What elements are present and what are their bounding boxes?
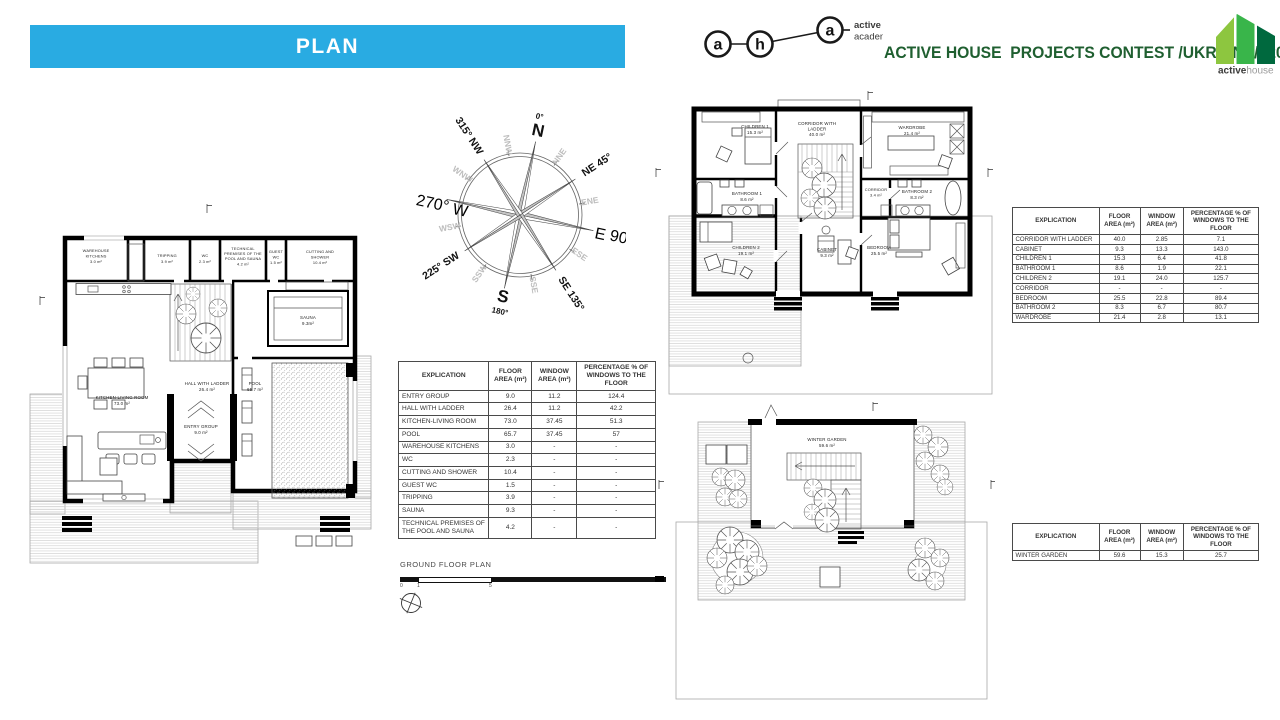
column-header: PERCENTAGE % OF WINDOWS TO THE FLOOR <box>1183 208 1258 235</box>
value-cell: 15.3 <box>1140 551 1183 561</box>
column-header: EXPLICATION <box>1013 524 1100 551</box>
room-area: 3.9 m² <box>161 259 173 264</box>
compass-label-northeast: NE 45° <box>580 151 615 179</box>
room-label: CHILDREN 2 <box>732 245 760 250</box>
value-cell: 19.1 <box>1099 274 1140 284</box>
value-cell: - <box>577 467 656 480</box>
house-icon <box>1216 10 1275 64</box>
scale-tick: 1 <box>417 583 420 589</box>
value-cell: 13.1 <box>1183 313 1258 323</box>
room-name-cell: CHILDREN 2 <box>1013 274 1100 284</box>
table-row: CHILDREN 115.36.441.8 <box>1013 254 1259 264</box>
room-label: GUEST <box>269 249 284 254</box>
scale-ticks: 0 1 5 <box>400 583 666 589</box>
table-row: WINTER GARDEN59.615.325.7 <box>1013 551 1259 561</box>
room-label: WARDROBE <box>899 125 926 130</box>
room-label: KITCHEN-LIVING ROOM <box>96 395 149 400</box>
room-name-cell: CORRIDOR <box>1013 284 1100 294</box>
table-row: CUTTING AND SHOWER10.4-- <box>399 467 656 480</box>
table-header-row: EXPLICATIONFLOOR AREA (m²)WINDOW AREA (m… <box>1013 208 1259 235</box>
value-cell: 26.4 <box>489 403 532 416</box>
room-name-cell: HALL WITH LADDER <box>399 403 489 416</box>
room-name-cell: BATHROOM 2 <box>1013 303 1100 313</box>
elevation-mark <box>655 576 664 582</box>
compass-label-wsw: WSW <box>438 220 462 234</box>
column-header: FLOOR AREA (m²) <box>1099 208 1140 235</box>
room-area: 19.1 m² <box>738 251 754 256</box>
room-area: 21.4 m² <box>904 131 920 136</box>
value-cell: 42.2 <box>577 403 656 416</box>
activehouse-text-light: house <box>1246 66 1274 77</box>
room-label: CORRIDOR WITH <box>798 121 836 126</box>
room-label: SAUNA <box>300 315 316 320</box>
scale-bar <box>400 577 666 582</box>
ground-floor-table: EXPLICATIONFLOOR AREA (m²)WINDOW AREA (m… <box>398 361 656 539</box>
value-cell: 9.0 <box>489 390 532 403</box>
dimension-mark-icon <box>873 402 878 411</box>
dimension-mark-icon <box>868 91 873 100</box>
north-symbol-icon <box>398 590 424 616</box>
shower-hatch <box>286 282 348 290</box>
value-cell: 143.0 <box>1183 245 1258 255</box>
value-cell: - <box>532 441 577 454</box>
closet-hatch <box>128 244 144 281</box>
room-area: 9.0 m² <box>194 430 208 435</box>
table-row: HALL WITH LADDER26.411.242.2 <box>399 403 656 416</box>
room-area: 65.7 m² <box>247 387 263 392</box>
table-row: CHILDREN 219.124.0125.7 <box>1013 274 1259 284</box>
compass-label-sse: SSE <box>528 276 541 295</box>
value-cell: - <box>532 505 577 518</box>
room-area: 3.4 m² <box>870 193 882 198</box>
value-cell: 57 <box>577 428 656 441</box>
value-cell: - <box>532 517 577 538</box>
value-cell: 25.7 <box>1183 551 1258 561</box>
room-label: CHILDREN 1 <box>741 124 769 129</box>
table-row: CABINET9.313.3143.0 <box>1013 245 1259 255</box>
room-area: 8.6 m² <box>740 197 754 202</box>
first-floor-plan: CHILDREN 1 15.3 m² CORRIDOR WITH LADDER … <box>650 90 1000 420</box>
dimension-mark-icon <box>207 204 212 213</box>
table-row: CORRIDOR WITH LADDER40.02.857.1 <box>1013 235 1259 245</box>
column-header: WINDOW AREA (m²) <box>532 362 577 391</box>
room-name-cell: TRIPPING <box>399 492 489 505</box>
column-header: PERCENTAGE % OF WINDOWS TO THE FLOOR <box>577 362 656 391</box>
value-cell: - <box>577 441 656 454</box>
column-header: FLOOR AREA (m²) <box>1099 524 1140 551</box>
table-row: TECHNICAL PREMISES OF THE POOL AND SAUNA… <box>399 517 656 538</box>
room-name-cell: WAREHOUSE KITCHENS <box>399 441 489 454</box>
value-cell: - <box>577 517 656 538</box>
room-name-cell: CUTTING AND SHOWER <box>399 467 489 480</box>
room-area: 9.3m² <box>302 321 314 326</box>
value-cell: 24.0 <box>1140 274 1183 284</box>
room-label: POOL AND SAUNA <box>225 256 262 261</box>
room-label: ENTRY GROUP <box>184 424 218 429</box>
table-row: SAUNA9.3-- <box>399 505 656 518</box>
column-header: PERCENTAGE % OF WINDOWS TO THE FLOOR <box>1183 524 1258 551</box>
value-cell: - <box>532 479 577 492</box>
room-area: 73.0 m² <box>114 401 130 406</box>
room-label: LADDER <box>808 127 827 132</box>
activehouse-text-bold: active <box>1218 66 1247 77</box>
room-name-cell: KITCHEN-LIVING ROOM <box>399 416 489 429</box>
room-name-cell: SAUNA <box>399 505 489 518</box>
room-label: WINTER GARDEN <box>807 437 846 442</box>
table-row: BATHROOM 28.36.780.7 <box>1013 303 1259 313</box>
compass-label-nnw: NNW <box>501 134 515 157</box>
room-name-cell: WINTER GARDEN <box>1013 551 1100 561</box>
stair-trees <box>801 158 836 219</box>
logo-letter: h <box>755 37 765 54</box>
value-cell: 8.3 <box>1099 303 1140 313</box>
scale-tick: 0 <box>400 583 403 589</box>
value-cell: 51.3 <box>577 416 656 429</box>
room-area: 8.3 m² <box>910 195 924 200</box>
value-cell: 10.4 <box>489 467 532 480</box>
compass-label-southwest: 225° SW <box>420 250 461 283</box>
value-cell: - <box>532 492 577 505</box>
compass-rose: 0° N NE 45° E 90° SE 135° S 180° 225° SW… <box>414 105 626 320</box>
dimension-mark-icon <box>40 296 45 305</box>
value-cell: - <box>577 479 656 492</box>
column-header: WINDOW AREA (m²) <box>1140 208 1183 235</box>
compass-label-north: N <box>530 120 546 141</box>
room-label: TRIPPING <box>157 253 177 258</box>
column-header: WINDOW AREA (m²) <box>1140 524 1183 551</box>
table-row: POOL65.737.4557 <box>399 428 656 441</box>
table-row: GUEST WC1.5-- <box>399 479 656 492</box>
value-cell: - <box>577 492 656 505</box>
dimension-mark-icon <box>988 168 993 177</box>
value-cell: 3.0 <box>489 441 532 454</box>
compass-label-ene: ENE <box>580 195 599 208</box>
value-cell: 65.7 <box>489 428 532 441</box>
column-header: FLOOR AREA (m²) <box>489 362 532 391</box>
room-label: BEDROOM <box>867 245 891 250</box>
winter-garden-table: EXPLICATIONFLOOR AREA (m²)WINDOW AREA (m… <box>1012 523 1259 561</box>
room-name-cell: GUEST WC <box>399 479 489 492</box>
room-label: WAREHOUSE <box>83 248 110 253</box>
children1-furniture <box>702 112 771 164</box>
table-row: WAREHOUSE KITCHENS3.0-- <box>399 441 656 454</box>
compass-label-east: E 90° <box>593 224 626 250</box>
logo-connector <box>772 33 818 42</box>
table-row: WC2.3-- <box>399 454 656 467</box>
table-header-row: EXPLICATIONFLOOR AREA (m²)WINDOW AREA (m… <box>1013 524 1259 551</box>
compass-label-south: S <box>496 286 511 307</box>
value-cell: 11.2 <box>532 390 577 403</box>
value-cell: 8.6 <box>1099 264 1140 274</box>
value-cell: 125.7 <box>1183 274 1258 284</box>
room-area: 15.3 m² <box>747 130 763 135</box>
value-cell: 13.3 <box>1140 245 1183 255</box>
room-label: BATHROOM 2 <box>902 189 933 194</box>
room-area: 2.3 m² <box>199 259 211 264</box>
value-cell: 89.4 <box>1183 294 1258 304</box>
value-cell: 11.2 <box>532 403 577 416</box>
room-area: 25.5 m² <box>871 251 887 256</box>
logo-letter: a <box>714 37 723 54</box>
room-label: CABINET <box>817 247 837 252</box>
column-header: EXPLICATION <box>1013 208 1100 235</box>
dimension-mark-icon <box>656 168 661 177</box>
dining-furniture <box>78 358 144 409</box>
value-cell: 4.2 <box>489 517 532 538</box>
value-cell: 40.0 <box>1099 235 1140 245</box>
value-cell: - <box>577 454 656 467</box>
room-label: WC <box>273 255 280 260</box>
compass-label-south-degree: 180° <box>491 305 509 317</box>
first-floor-table: EXPLICATIONFLOOR AREA (m²)WINDOW AREA (m… <box>1012 207 1259 323</box>
value-cell: 9.3 <box>1099 245 1140 255</box>
academy-name-line1: active house <box>854 20 883 31</box>
room-area: 9.3 m² <box>820 253 834 258</box>
value-cell: 25.5 <box>1099 294 1140 304</box>
wardrobe-furniture <box>864 112 965 175</box>
ground-floor-caption: GROUND FLOOR PLAN <box>400 560 491 569</box>
column-header: EXPLICATION <box>399 362 489 391</box>
room-name-cell: WC <box>399 454 489 467</box>
value-cell: 1.5 <box>489 479 532 492</box>
room-label: WC <box>202 253 209 258</box>
value-cell: 59.6 <box>1099 551 1140 561</box>
room-label: SHOWER <box>311 255 329 260</box>
scale-tick: 5 <box>489 583 492 589</box>
dimension-mark-icon <box>659 480 664 489</box>
room-name-cell: ENTRY GROUP <box>399 390 489 403</box>
value-cell: 7.1 <box>1183 235 1258 245</box>
value-cell: 73.0 <box>489 416 532 429</box>
room-area: 26.4 m² <box>199 387 215 392</box>
room-name-cell: BEDROOM <box>1013 294 1100 304</box>
room-name-cell: CORRIDOR WITH LADDER <box>1013 235 1100 245</box>
room-label: BATHROOM 1 <box>732 191 763 196</box>
compass-label-nne: NNE <box>550 146 569 167</box>
room-label: CORRIDOR <box>865 187 887 192</box>
value-cell: 2.3 <box>489 454 532 467</box>
room-label: HALL WITH LADDER <box>185 381 230 386</box>
table-row: BEDROOM25.522.889.4 <box>1013 294 1259 304</box>
dimension-mark-icon <box>991 480 995 489</box>
room-name-cell: TECHNICAL PREMISES OF THE POOL AND SAUNA <box>399 517 489 538</box>
room-area: 59.6 m² <box>819 443 835 448</box>
value-cell: 9.3 <box>489 505 532 518</box>
compass-label-ese: ESE <box>570 245 590 263</box>
room-label: KITCHENS <box>86 254 107 259</box>
value-cell: 3.9 <box>489 492 532 505</box>
section-banner: PLAN <box>30 25 625 68</box>
value-cell: 21.4 <box>1099 313 1140 323</box>
compass-label-northwest: 315° NW <box>452 115 485 157</box>
table-row: CORRIDOR--- <box>1013 284 1259 294</box>
room-name-cell: CHILDREN 1 <box>1013 254 1100 264</box>
slide-canvas: { "slide": { "section_title": "PLAN" }, … <box>0 0 1280 720</box>
value-cell: - <box>1140 284 1183 294</box>
table-row: BATHROOM 18.61.922.1 <box>1013 264 1259 274</box>
page-title: PLAN <box>296 35 359 59</box>
compass-label-ssw: SSW <box>470 262 490 284</box>
table-row: ENTRY GROUP9.011.2124.4 <box>399 390 656 403</box>
table-row: KITCHEN-LIVING ROOM73.037.4551.3 <box>399 416 656 429</box>
room-name-cell: POOL <box>399 428 489 441</box>
value-cell: - <box>577 505 656 518</box>
scale-bar-segment <box>418 577 492 583</box>
room-area: 1.5 m² <box>270 260 282 265</box>
academy-logo: a h a active house academy <box>698 12 883 64</box>
compass-label-west: 270° W <box>414 192 470 221</box>
table-row: TRIPPING3.9-- <box>399 492 656 505</box>
svg-text:activehouse: activehouse <box>1218 66 1274 77</box>
bathroom1-fixtures <box>697 180 773 216</box>
value-cell: 6.7 <box>1140 303 1183 313</box>
value-cell: 2.85 <box>1140 235 1183 245</box>
value-cell: 22.8 <box>1140 294 1183 304</box>
value-cell: 124.4 <box>577 390 656 403</box>
room-label: CUTTING AND <box>306 249 334 254</box>
activehouse-logo: activehouse <box>1216 10 1278 76</box>
value-cell: 41.8 <box>1183 254 1258 264</box>
logo-letter: a <box>826 23 835 40</box>
value-cell: - <box>1183 284 1258 294</box>
room-name-cell: BATHROOM 1 <box>1013 264 1100 274</box>
table-header-row: EXPLICATIONFLOOR AREA (m²)WINDOW AREA (m… <box>399 362 656 391</box>
stair-trees <box>176 287 227 353</box>
room-area: 40.0 m² <box>809 132 825 137</box>
room-name-cell: CABINET <box>1013 245 1100 255</box>
winter-garden-plan: WINTER GARDEN 59.6 m² <box>655 400 995 720</box>
compass-label-southeast: SE 135° <box>555 275 586 314</box>
room-name-cell: WARDROBE <box>1013 313 1100 323</box>
value-cell: 22.1 <box>1183 264 1258 274</box>
value-cell: - <box>532 454 577 467</box>
value-cell: 6.4 <box>1140 254 1183 264</box>
academy-name-line2: academy <box>854 32 883 43</box>
value-cell: - <box>1099 284 1140 294</box>
value-cell: 2.8 <box>1140 313 1183 323</box>
value-cell: 80.7 <box>1183 303 1258 313</box>
value-cell: - <box>532 467 577 480</box>
room-area: 10.4 m² <box>313 260 328 265</box>
ground-floor-plan: WAREHOUSE KITCHENS 3.0 m² TRIPPING 3.9 m… <box>28 196 393 616</box>
value-cell: 37.45 <box>532 428 577 441</box>
room-area: 3.0 m² <box>90 259 102 264</box>
table-row: WARDROBE21.42.813.1 <box>1013 313 1259 323</box>
value-cell: 1.9 <box>1140 264 1183 274</box>
room-label: POOL <box>249 381 262 386</box>
value-cell: 15.3 <box>1099 254 1140 264</box>
room-area: 4.2 m² <box>237 262 249 267</box>
value-cell: 37.45 <box>532 416 577 429</box>
